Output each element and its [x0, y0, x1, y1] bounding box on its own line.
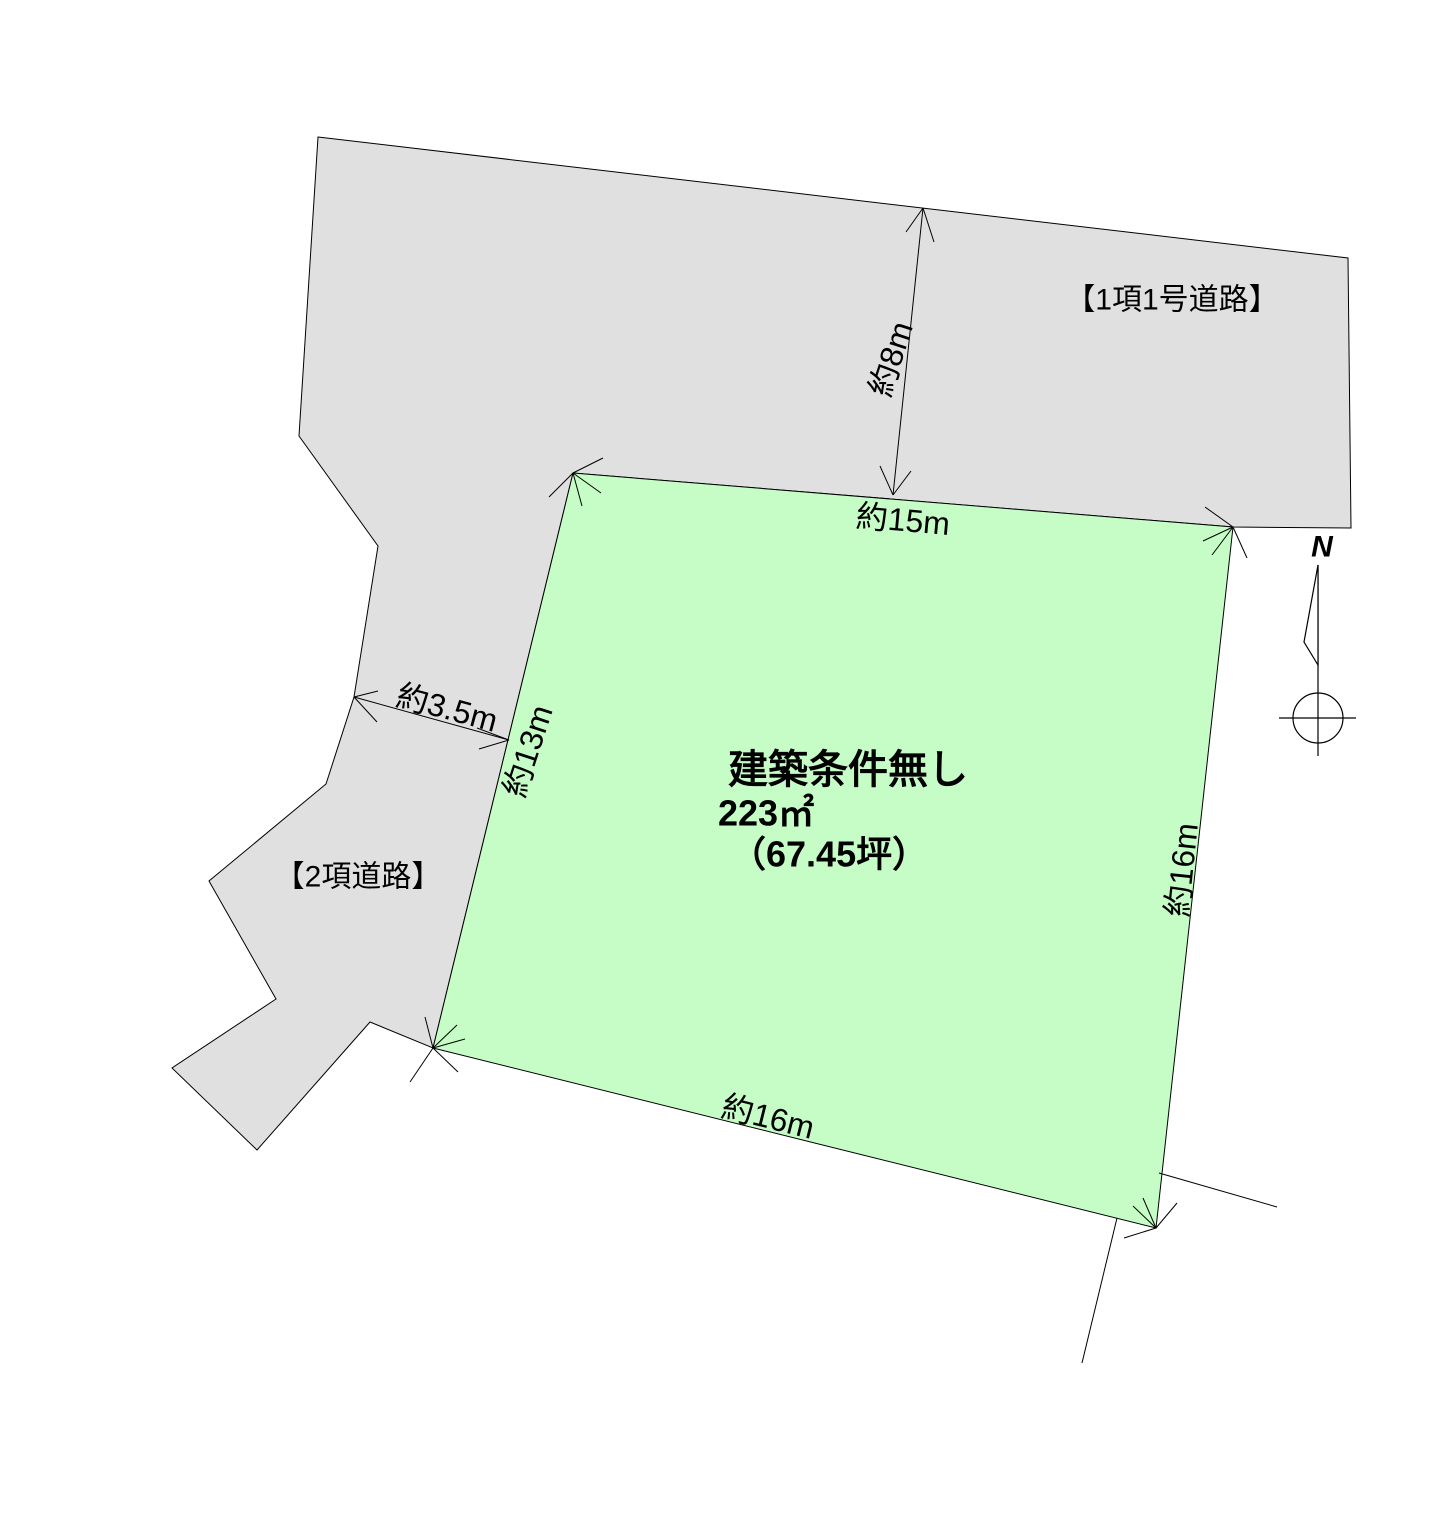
lot-tsubo: （67.45坪） — [730, 834, 928, 875]
neighbor-boundary-line — [1082, 1218, 1117, 1363]
lot-area: 223㎡ — [718, 793, 814, 834]
north-label: N — [1311, 531, 1334, 564]
lot-title: 建築条件無し — [728, 748, 968, 792]
dimension-arrow-tick — [1156, 1203, 1177, 1228]
road1-label: 【1項1号道路】 — [1065, 284, 1278, 317]
compass-pennant — [1304, 565, 1318, 665]
site-plan: 【1項1号道路】【2項道路】約8m約15m約3.5m約13m約16m約16m建築… — [0, 0, 1438, 1524]
road2-label: 【2項道路】 — [275, 861, 442, 894]
dimension-arrow-tick — [1124, 1228, 1156, 1238]
dimension-arrow-tick — [410, 1048, 433, 1082]
dimension-arrow-tick — [1233, 527, 1247, 558]
neighbor-boundary-line — [1159, 1173, 1277, 1207]
site-plan-svg: 【1項1号道路】【2項道路】約8m約15m約3.5m約13m約16m約16m建築… — [0, 0, 1438, 1524]
